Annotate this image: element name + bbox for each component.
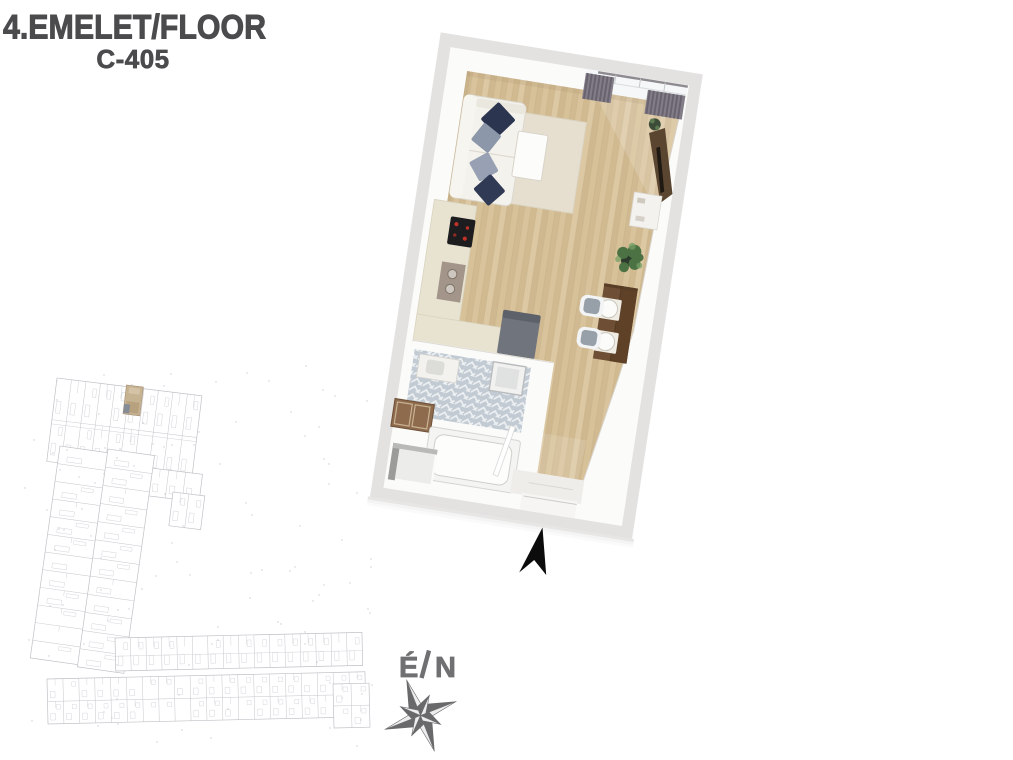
- svg-text:N: N: [435, 652, 456, 684]
- svg-text:É: É: [399, 650, 418, 684]
- svg-text:C-405: C-405: [96, 44, 169, 74]
- svg-text:4.EMELET/FLOOR: 4.EMELET/FLOOR: [3, 9, 266, 47]
